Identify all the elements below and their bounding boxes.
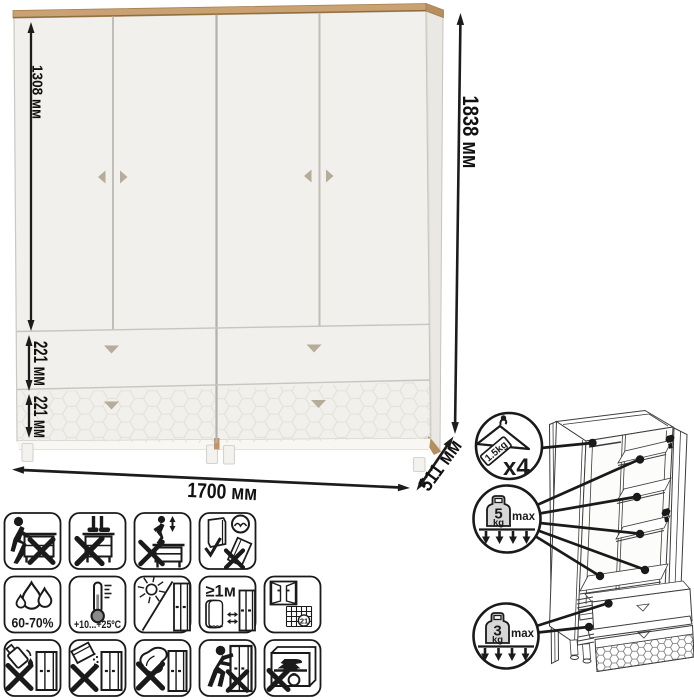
- svg-text:21: 21: [300, 617, 308, 626]
- svg-text:max: max: [511, 628, 535, 640]
- svg-text:1700 мм: 1700 мм: [187, 479, 258, 505]
- svg-text:60-70%: 60-70%: [12, 616, 54, 631]
- svg-text:max: max: [512, 511, 536, 523]
- svg-text:≥1м: ≥1м: [206, 583, 236, 601]
- svg-text:1838 мм: 1838 мм: [458, 96, 483, 169]
- svg-text:1308 мм: 1308 мм: [29, 65, 45, 119]
- svg-text:221 мм: 221 мм: [29, 396, 50, 438]
- svg-text:x4: x4: [503, 454, 530, 481]
- svg-text:+10...+25ºC: +10...+25ºC: [74, 619, 121, 631]
- svg-text:221 мм: 221 мм: [29, 341, 50, 386]
- svg-text:kg: kg: [493, 518, 504, 529]
- svg-text:kg: kg: [492, 635, 503, 646]
